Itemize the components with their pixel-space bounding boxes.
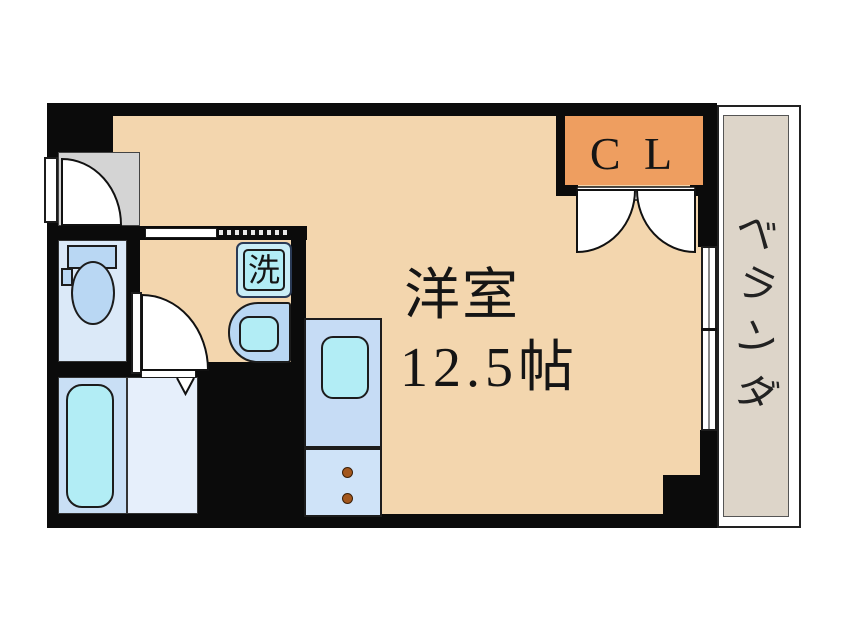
washbasin-bowl bbox=[239, 316, 279, 352]
main-room-size: 12.5帖 bbox=[400, 322, 579, 403]
wall-step-block bbox=[663, 475, 718, 528]
closet-label: C L bbox=[565, 127, 703, 180]
stove-knob bbox=[342, 493, 353, 504]
stove-knob bbox=[342, 467, 353, 478]
veranda-char: ベ bbox=[729, 205, 782, 258]
veranda-char: ダ bbox=[729, 367, 782, 420]
window-meeting-rail bbox=[701, 328, 717, 331]
floorplan: ベ ラ ン ダ C L 玄 洗 洋室 12.5帖 bbox=[0, 0, 846, 634]
bathroom-door-leaf bbox=[131, 292, 142, 374]
wall-bottom bbox=[47, 514, 718, 528]
laundry-label: 洗 bbox=[243, 249, 285, 291]
main-room-label: 洋室 bbox=[404, 250, 520, 331]
veranda-char: ラ bbox=[729, 259, 782, 312]
veranda-char: ン bbox=[729, 313, 782, 366]
bathroom-door-threshold bbox=[141, 366, 196, 378]
window-sash-line bbox=[708, 248, 710, 429]
wall-corner-block bbox=[47, 103, 113, 152]
wall-top bbox=[47, 103, 717, 116]
toilet-bowl bbox=[71, 261, 115, 325]
sliding-door-track bbox=[219, 230, 287, 235]
kitchen-sink bbox=[321, 336, 369, 399]
void-space bbox=[198, 362, 306, 517]
bathtub bbox=[66, 384, 114, 508]
veranda-label: ベ ラ ン ダ bbox=[723, 212, 789, 428]
entry-door-leaf bbox=[44, 157, 58, 223]
bathroom-floor bbox=[127, 377, 198, 514]
kitchen-lower-cabinet bbox=[304, 448, 382, 517]
wall-closet-left-stub bbox=[556, 185, 578, 196]
sliding-door-panel bbox=[145, 228, 217, 238]
